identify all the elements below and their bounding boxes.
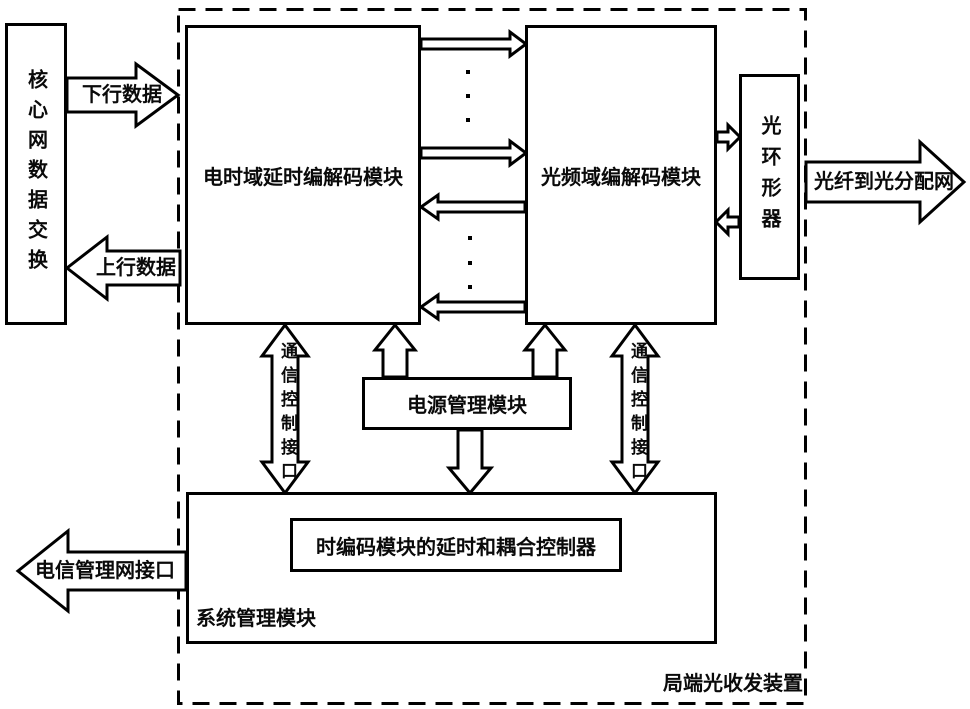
power-up-arrow-right	[525, 325, 565, 377]
delay-coupling-controller-label: 时编码模块的延时和耦合控制器	[316, 531, 596, 560]
optical-circulator-box: 光环形器	[739, 74, 800, 280]
optical-codec-label: 光频域编解码模块	[541, 161, 701, 190]
comm-interface-label-right: 通信控制接口	[620, 338, 650, 490]
codec-link-arrow-right-2	[421, 141, 526, 165]
delay-coupling-controller-box: 时编码模块的延时和耦合控制器	[290, 518, 622, 572]
downlink-data-label: 下行数据	[72, 84, 172, 106]
core-network-switch-box: 核心网数据交换	[5, 23, 67, 325]
device-boundary-label: 局端光收发装置	[658, 673, 808, 695]
circulator-arrow-right	[717, 125, 740, 149]
ellipsis-dots-bottom	[468, 236, 472, 289]
power-down-arrow	[449, 430, 491, 493]
uplink-data-label: 上行数据	[90, 257, 182, 279]
circulator-arrow-left	[716, 210, 739, 234]
comm-interface-label-left: 通信控制接口	[270, 338, 300, 490]
optical-frequency-domain-codec-module: 光频域编解码模块	[525, 25, 717, 325]
power-management-module: 电源管理模块	[362, 377, 572, 430]
odn-label: 光纤到光分配网	[810, 171, 958, 193]
optical-circulator-label: 光环形器	[755, 115, 784, 239]
tmn-interface-label: 电信管理网接口	[32, 560, 178, 582]
codec-link-arrow-left-2	[421, 295, 525, 319]
diagram-canvas: 核心网数据交换 电时域延时编解码模块 光频域编解码模块 光环形器 电源管理模块 …	[0, 0, 970, 709]
codec-link-arrow-left-1	[421, 195, 525, 219]
core-network-switch-label: 核心网数据交换	[22, 69, 51, 279]
power-up-arrow-left	[375, 325, 415, 377]
codec-link-arrow-right-1	[421, 32, 526, 56]
electrical-codec-label: 电时域延时编解码模块	[203, 161, 403, 190]
electrical-time-domain-codec-module: 电时域延时编解码模块	[185, 25, 421, 325]
system-management-label: 系统管理模块	[196, 602, 316, 631]
power-management-label: 电源管理模块	[407, 389, 527, 418]
ellipsis-dots-top	[466, 70, 470, 122]
